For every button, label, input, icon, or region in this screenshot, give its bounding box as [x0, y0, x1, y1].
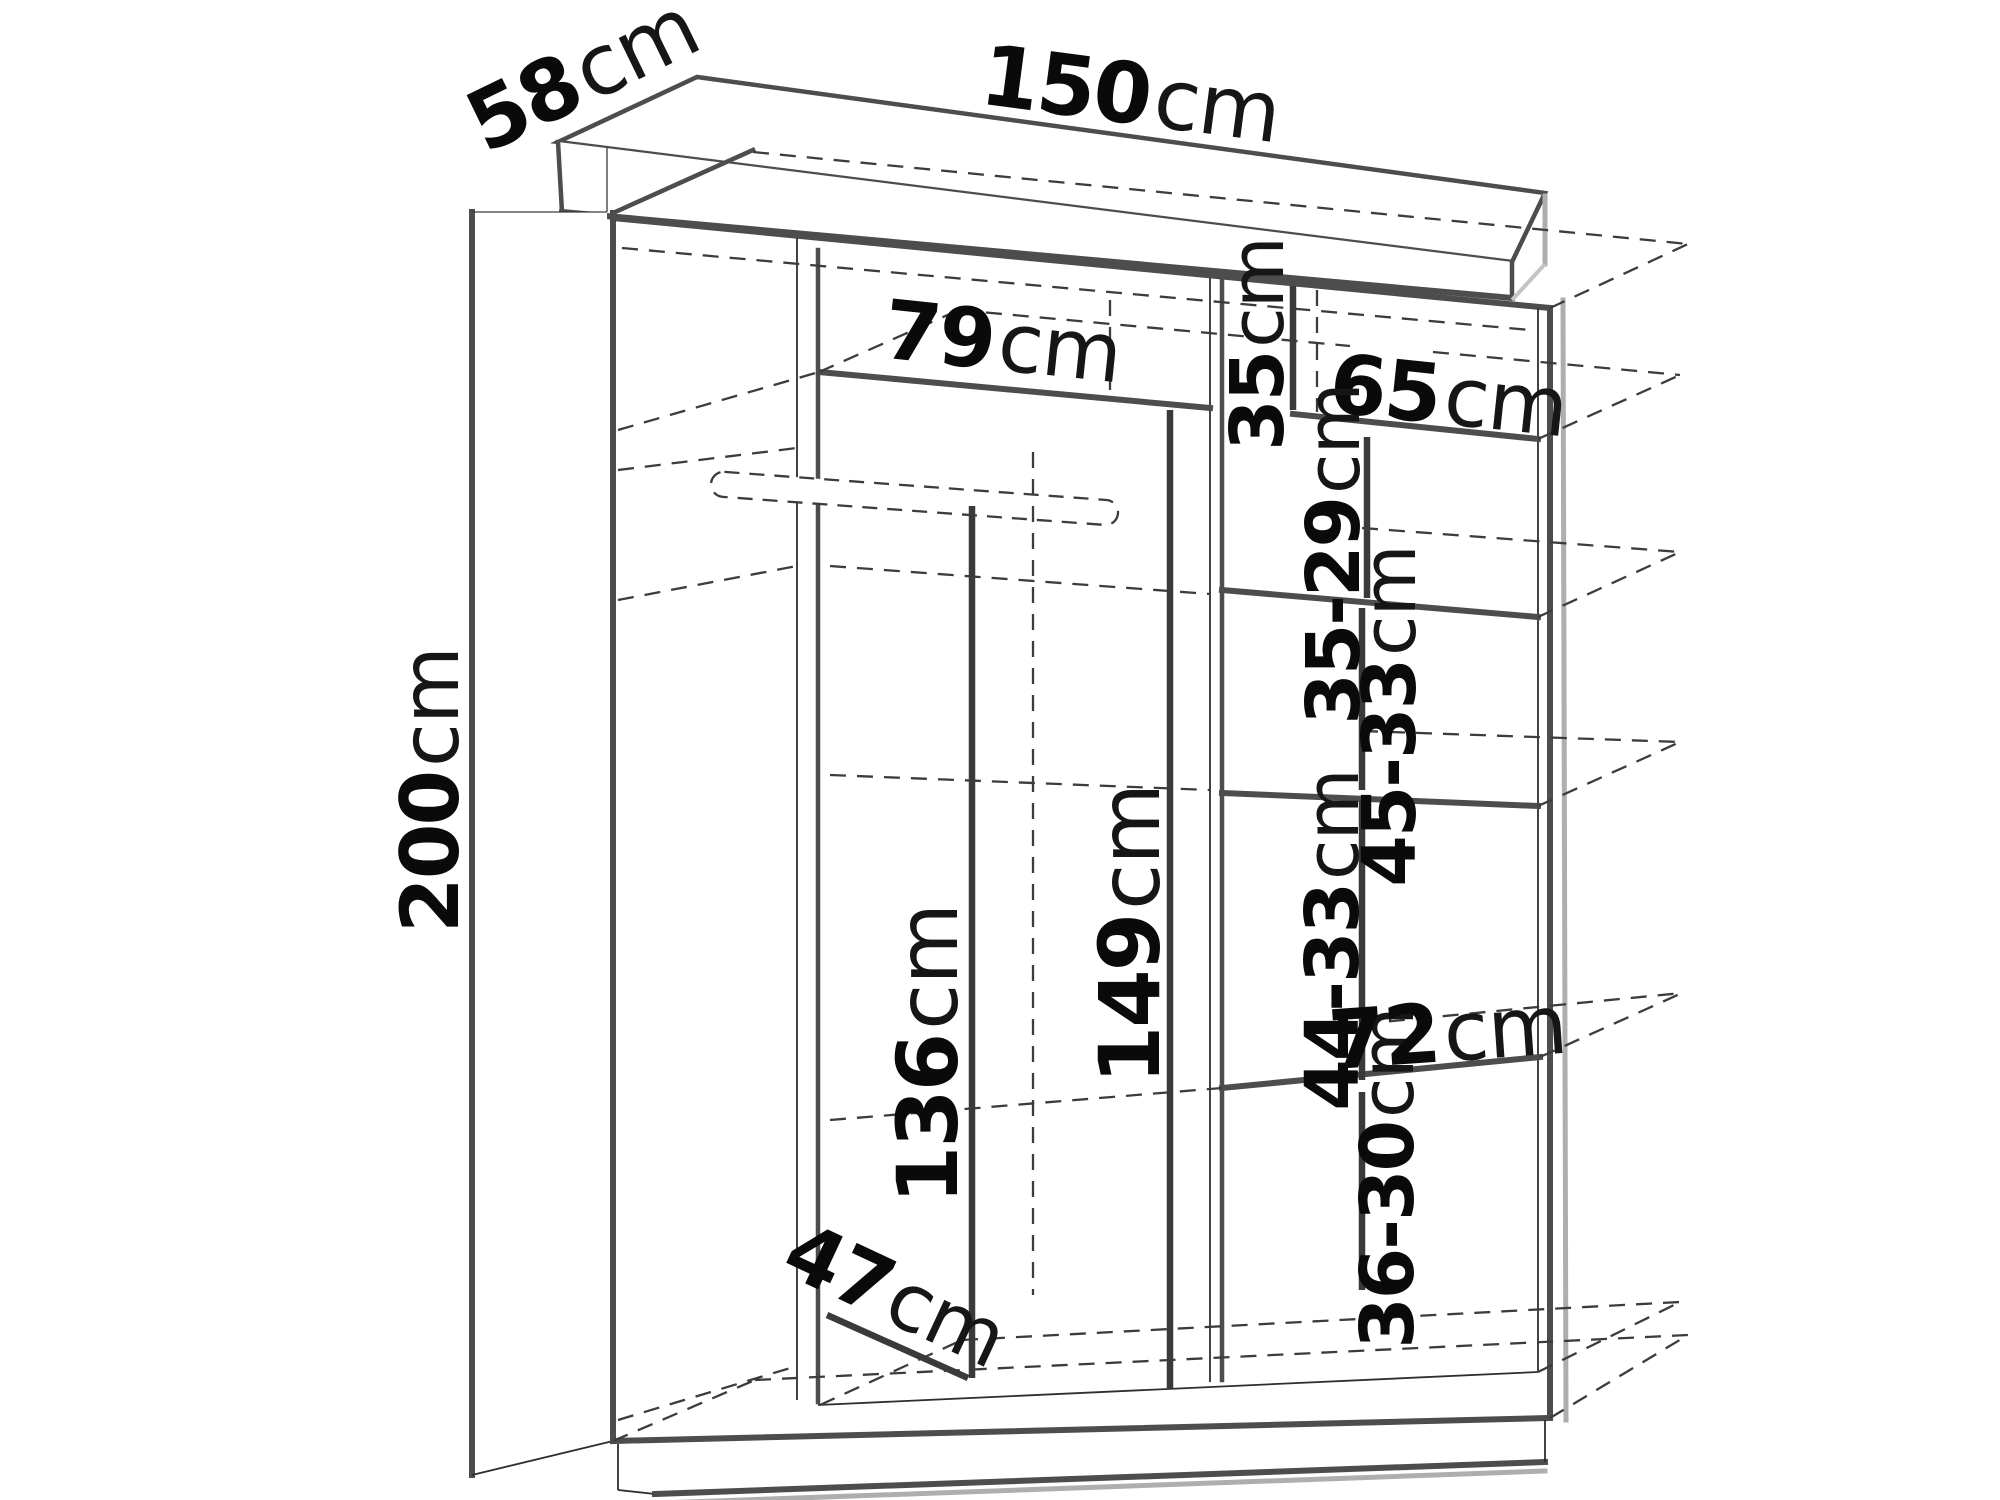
hanging-rail-outline [710, 471, 1119, 526]
left-section-height-label: 149cm [1081, 784, 1179, 1084]
bottom-shelf-width-label: 72cm [1326, 978, 1570, 1089]
right-wall-outer-shadow [1563, 300, 1566, 1420]
carcass-bottom-front-edge [613, 1418, 1550, 1441]
left-wall-projection-lines [618, 448, 797, 1420]
hanging-rail [710, 471, 1119, 526]
interior-depth-label: 47cm [770, 1204, 1020, 1386]
interior-floor-front-edge [818, 1372, 1538, 1405]
top-cubby-height-label: 35cm [1215, 237, 1301, 451]
left-side-panel-face [472, 212, 613, 1475]
plinth-left-corner [618, 1490, 655, 1494]
diagram-canvas: 58cm 150cm 200cm 79cm 35cm 65cm 35-29cm … [0, 0, 2000, 1500]
crown-right-lower-shadow [1512, 264, 1545, 300]
left-side-panel [472, 148, 613, 1475]
height-label: 200cm [384, 647, 477, 933]
rail-height-label: 136cm [879, 904, 977, 1204]
left-shelf-width-label: 79cm [879, 283, 1126, 402]
wardrobe-dimension-diagram: 58cm 150cm 200cm 79cm 35cm 65cm 35-29cm … [0, 0, 2000, 1500]
